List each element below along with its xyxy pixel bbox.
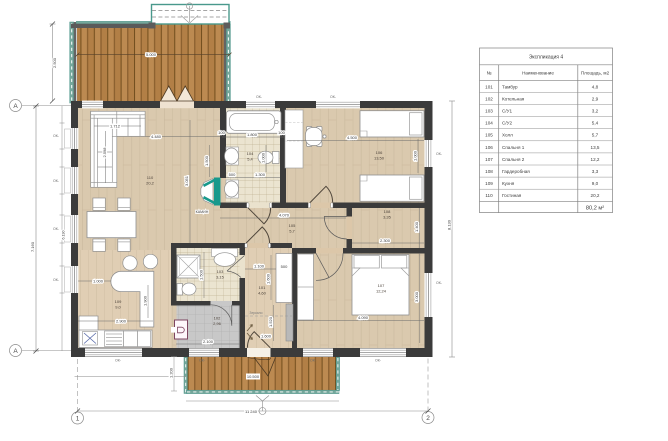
svg-text:106: 106 [485,145,493,150]
svg-text:Экспликация 4: Экспликация 4 [529,55,564,61]
svg-text:4.090: 4.090 [358,315,369,320]
svg-text:ОК-: ОК- [256,95,263,99]
svg-text:20,2: 20,2 [591,193,600,198]
svg-text:500: 500 [281,264,288,269]
svg-text:ОК-: ОК- [330,95,337,99]
svg-text:3.051: 3.051 [184,175,189,186]
svg-text:3,2: 3,2 [592,109,599,114]
svg-text:4.070: 4.070 [279,213,290,218]
svg-text:ОК-: ОК- [436,281,443,285]
svg-text:1.520: 1.520 [268,316,273,327]
svg-text:1: 1 [76,415,80,422]
svg-text:4.480: 4.480 [151,134,162,139]
svg-text:ОК-: ОК- [199,359,206,363]
svg-text:№: № [487,71,492,76]
svg-text:КАМИН: КАМИН [196,210,209,214]
svg-text:А: А [13,103,18,110]
svg-text:12,2: 12,2 [591,157,600,162]
svg-text:ОК-: ОК- [53,179,60,183]
svg-text:1.600: 1.600 [266,273,271,284]
svg-text:108: 108 [384,209,391,214]
svg-text:2,96: 2,96 [213,321,222,326]
svg-text:1.900: 1.900 [142,295,147,306]
svg-text:Тамбур: Тамбур [502,84,518,89]
svg-text:ОК-: ОК- [115,359,122,363]
svg-text:103: 103 [485,109,493,114]
svg-text:Гостиная: Гостиная [502,193,522,198]
svg-text:108: 108 [485,169,493,174]
svg-text:Спальня 2: Спальня 2 [502,157,525,162]
svg-text:104: 104 [247,151,254,156]
svg-text:ОК-: ОК- [53,278,60,282]
svg-text:9,0: 9,0 [115,305,121,310]
svg-text:Гардеробная: Гардеробная [502,169,530,174]
svg-text:1.500: 1.500 [204,155,209,166]
svg-text:5,7: 5,7 [592,133,599,138]
svg-text:3,35: 3,35 [383,215,392,220]
svg-text:2: 2 [426,415,430,422]
svg-text:106: 106 [376,150,383,155]
svg-text:12,24: 12,24 [376,289,387,294]
svg-text:2.100: 2.100 [203,339,214,344]
svg-text:107: 107 [378,283,385,288]
svg-text:105: 105 [485,133,493,138]
svg-text:3,15: 3,15 [216,275,225,280]
svg-text:2,9: 2,9 [592,96,599,101]
svg-text:110: 110 [147,175,154,180]
svg-text:103: 103 [217,269,224,274]
svg-text:2.300: 2.300 [380,238,391,243]
svg-text:Спальня 1: Спальня 1 [502,145,525,150]
svg-text:2.500: 2.500 [52,57,57,68]
svg-text:8.130: 8.130 [446,219,451,230]
svg-text:1.500: 1.500 [198,269,203,280]
svg-text:20,2: 20,2 [146,181,155,186]
svg-text:13,50: 13,50 [374,156,385,161]
svg-text:1.800: 1.800 [247,132,258,137]
svg-text:80,2 м²: 80,2 м² [586,206,604,212]
svg-text:3,3: 3,3 [592,169,599,174]
svg-text:5,4: 5,4 [247,157,253,162]
svg-text:104: 104 [485,121,493,126]
svg-text:ОК-: ОК- [53,134,60,138]
svg-text:7.160: 7.160 [30,241,35,252]
svg-text:1.400: 1.400 [414,221,419,232]
svg-text:ОК-: ОК- [53,227,60,231]
svg-text:109: 109 [115,299,122,304]
svg-text:13,5: 13,5 [591,145,600,150]
svg-text:105: 105 [289,223,296,228]
svg-text:1.000: 1.000 [93,279,104,284]
svg-text:Кухня: Кухня [502,181,515,186]
svg-text:100: 100 [278,130,285,135]
svg-text:2.598: 2.598 [102,147,107,158]
svg-text:Площадь, м2: Площадь, м2 [581,71,610,76]
svg-text:9,0: 9,0 [592,181,599,186]
svg-text:101: 101 [259,285,266,290]
svg-text:107: 107 [485,157,493,162]
svg-text:А: А [13,348,18,355]
svg-text:ОК-: ОК- [436,152,443,156]
svg-text:1.000: 1.000 [412,150,417,161]
svg-text:С/У2: С/У2 [502,121,513,126]
svg-text:5,7: 5,7 [289,229,295,234]
svg-text:1.000: 1.000 [260,152,265,163]
svg-text:102: 102 [214,316,221,321]
svg-text:С/У1: С/У1 [502,109,513,114]
svg-text:3.000: 3.000 [414,291,419,302]
svg-text:Зеркало: Зеркало [249,311,262,315]
svg-text:10.500: 10.500 [247,374,260,379]
svg-text:110: 110 [485,193,493,198]
svg-text:109: 109 [485,181,493,186]
svg-text:Наименование: Наименование [522,71,554,76]
svg-text:102: 102 [485,96,493,101]
svg-text:4,60: 4,60 [258,291,267,296]
svg-text:1.200: 1.200 [168,367,173,378]
svg-text:4.500: 4.500 [347,135,358,140]
svg-text:1.712: 1.712 [110,124,121,129]
svg-text:500: 500 [229,172,236,177]
svg-text:101: 101 [485,84,493,89]
svg-text:ОК-: ОК- [310,359,317,363]
svg-text:1.600: 1.600 [261,334,272,339]
svg-text:Котельная: Котельная [502,96,525,101]
svg-text:5,4: 5,4 [592,121,599,126]
svg-text:100: 100 [218,130,225,135]
svg-text:6.130: 6.130 [62,231,66,240]
svg-text:5.000: 5.000 [146,52,157,57]
svg-text:1.300: 1.300 [255,172,266,177]
svg-text:4,8: 4,8 [592,84,599,89]
svg-text:2.900: 2.900 [116,318,127,323]
svg-text:ОК-: ОК- [375,359,382,363]
svg-text:11 240: 11 240 [245,409,258,414]
svg-text:1.100: 1.100 [254,264,265,269]
svg-text:Холл: Холл [502,133,513,138]
